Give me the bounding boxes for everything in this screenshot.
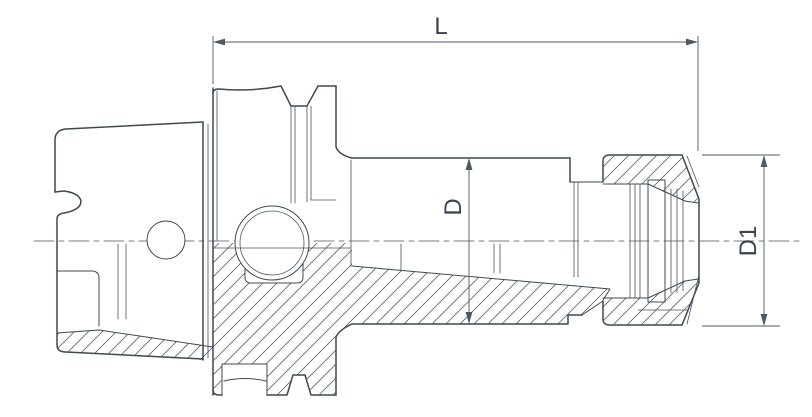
hatch-shank-wall <box>57 330 213 361</box>
dimension-nut-diameter: D1 <box>702 155 780 326</box>
dim-label-length: L <box>434 13 447 40</box>
tool-holder-drawing: L D D1 <box>0 0 812 417</box>
flange-top-profile <box>213 86 336 106</box>
technical-drawing-page: L D D1 <box>0 0 812 417</box>
dimension-length: L <box>213 13 698 151</box>
shank-hole <box>147 221 185 259</box>
flange-right-face-top <box>336 86 352 158</box>
d1-arrow-bottom <box>761 314 768 326</box>
dim-label-body-diameter: D <box>440 198 467 215</box>
l-arrow-left <box>213 39 225 46</box>
key-slot-floor-arc <box>224 379 266 382</box>
section-hatching <box>57 155 699 395</box>
dim-label-nut-diameter: D1 <box>735 226 762 257</box>
d-arrow-top <box>466 158 473 170</box>
gripper-groove <box>55 191 81 271</box>
groove-section-floor <box>57 271 99 326</box>
shank-top-edge <box>55 122 203 192</box>
flange-right-face-bottom <box>336 324 352 395</box>
flange-hole <box>235 206 309 280</box>
l-arrow-right <box>686 39 698 46</box>
d1-arrow-top <box>761 155 768 167</box>
